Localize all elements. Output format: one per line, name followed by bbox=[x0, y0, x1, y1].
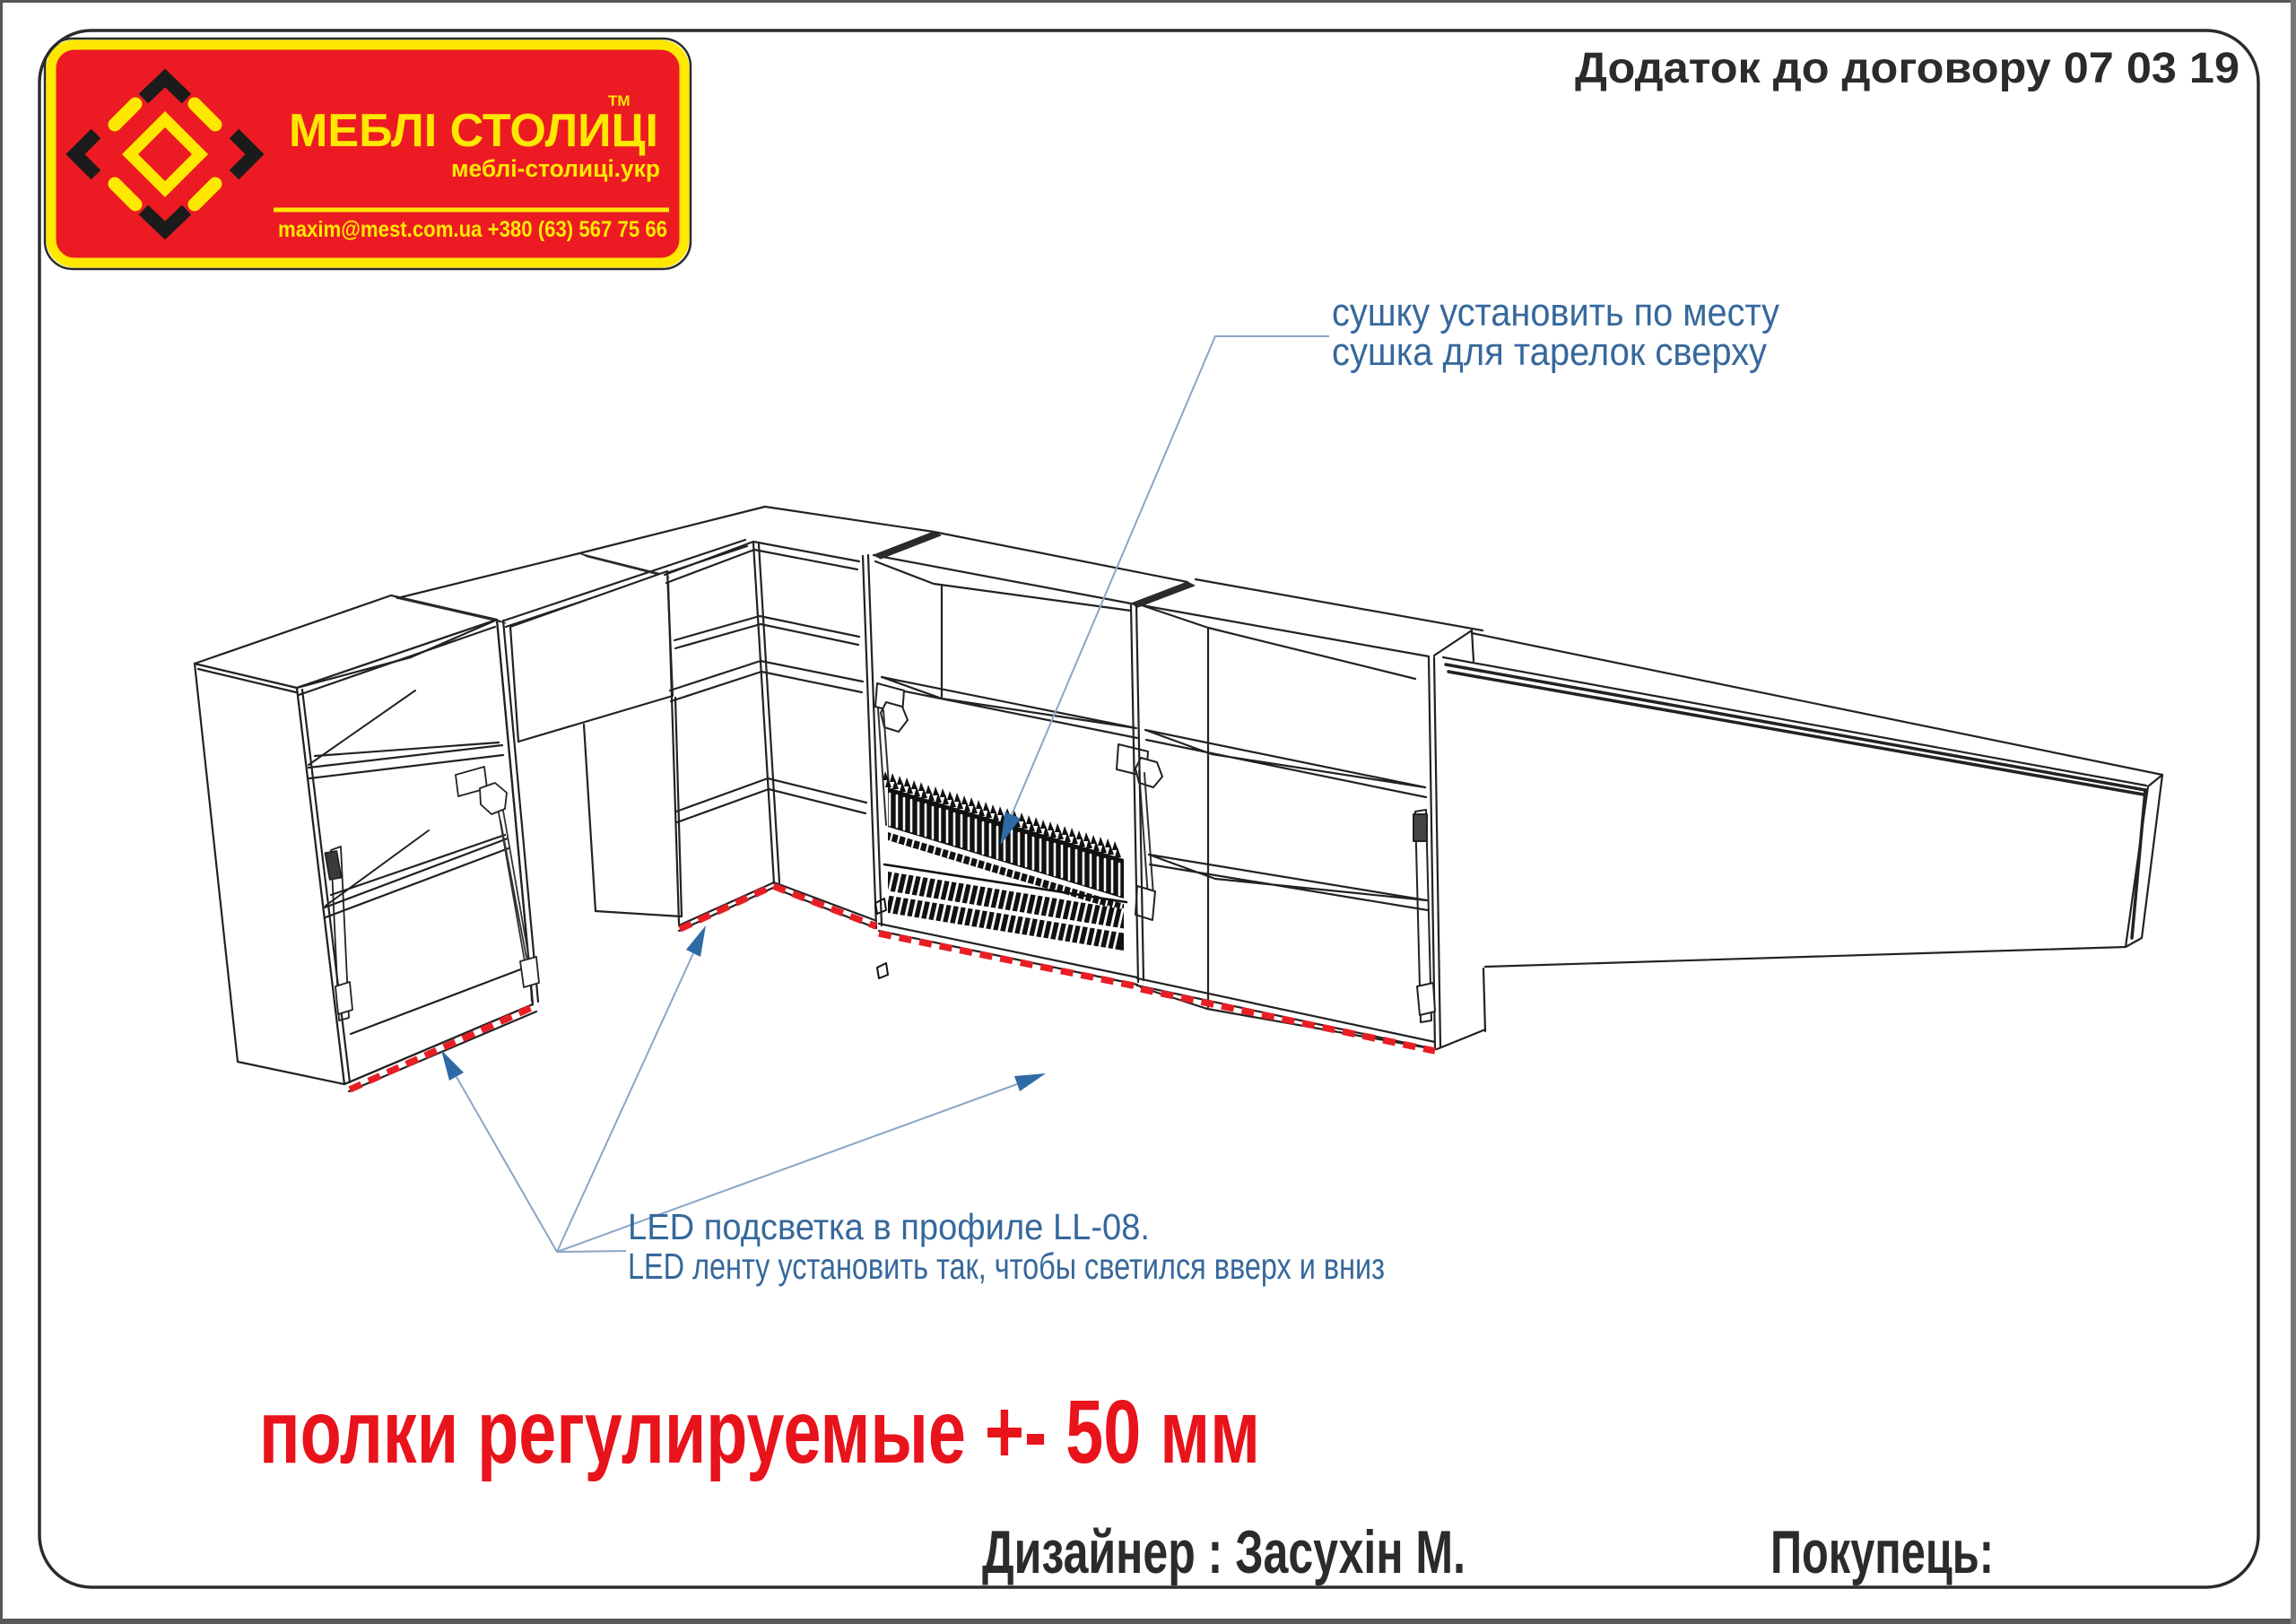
svg-text:Додаток до договору 07 03 19: Додаток до договору 07 03 19 bbox=[1575, 45, 2239, 92]
svg-text:сушка для тарелок сверху: сушка для тарелок сверху bbox=[1332, 330, 1767, 374]
svg-text:Покупець:: Покупець: bbox=[1770, 1518, 1994, 1586]
svg-text:сушку установить по месту: сушку установить по месту bbox=[1332, 291, 1779, 334]
svg-text:полки регулируемые +- 50 мм: полки регулируемые +- 50 мм bbox=[259, 1382, 1260, 1482]
svg-text:Дизайнер : Засухін М.: Дизайнер : Засухін М. bbox=[982, 1518, 1465, 1586]
svg-text:МЕБЛІ СТОЛИЦІ: МЕБЛІ СТОЛИЦІ bbox=[289, 105, 658, 157]
svg-text:меблі-столиці.укр: меблі-столиці.укр bbox=[451, 155, 660, 182]
svg-text:maxim@mest.com.ua +380 (63) 5: maxim@mest.com.ua +380 (63) 567 75 66 bbox=[278, 217, 667, 242]
svg-text:ТМ: ТМ bbox=[608, 92, 631, 109]
svg-text:LED подсветка в профиле LL-08.: LED подсветка в профиле LL-08. bbox=[628, 1206, 1150, 1247]
svg-text:LED ленту установить так, чтоб: LED ленту установить так, чтобы светился… bbox=[628, 1246, 1385, 1287]
